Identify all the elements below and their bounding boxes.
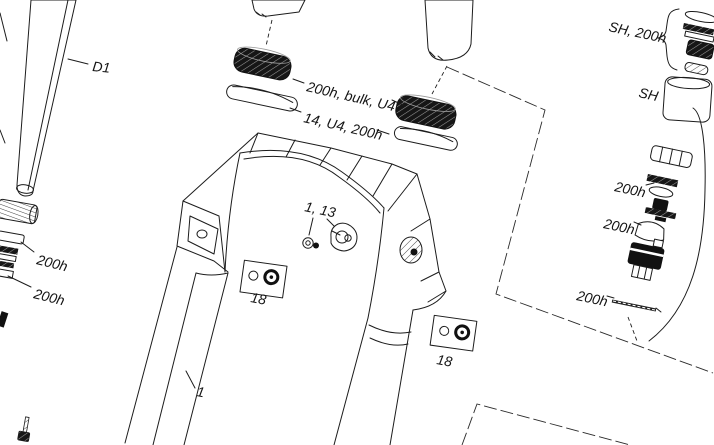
fork-lowers-crown bbox=[125, 133, 446, 445]
left-edge-tube-fragment bbox=[0, 13, 7, 143]
guide-screw bbox=[303, 238, 319, 249]
left-stanchion-tube-end bbox=[252, 0, 305, 17]
callout-seal-head: SH bbox=[637, 84, 660, 104]
piston-block bbox=[645, 198, 677, 223]
callout-right-shaft: 200h bbox=[574, 287, 609, 309]
exploded-parts-diagram: D1 200h, bulk, U4 14, U4, 200h SH, 200h … bbox=[0, 0, 714, 445]
leader-dashed-right-seal bbox=[432, 66, 447, 94]
left-seal-stack bbox=[0, 245, 18, 278]
seal-head-cup bbox=[663, 76, 713, 123]
callout-right-piston: 200h bbox=[601, 215, 636, 237]
callout-seal-head-group: SH, 200h bbox=[607, 18, 668, 46]
rebound-shaft bbox=[612, 301, 661, 312]
damper-shaft-tube bbox=[16, 0, 76, 196]
glide-ring bbox=[650, 145, 693, 168]
callout-dust-seal-kit: 200h, bulk, U4 bbox=[304, 78, 397, 114]
callout-fender-bolt-left: 18 bbox=[249, 289, 267, 307]
diagram-canvas: D1 200h, bulk, U4 14, U4, 200h SH, 200h … bbox=[0, 0, 714, 445]
left-dark-part bbox=[0, 311, 8, 327]
section-divider-lines bbox=[447, 67, 713, 445]
foam-ring-left bbox=[225, 84, 298, 113]
callout-left-lower-service: 200h bbox=[31, 285, 66, 308]
fender-bolt-plate-right bbox=[430, 315, 477, 351]
bottom-out-bumper bbox=[625, 242, 665, 282]
dust-seal-right bbox=[394, 91, 459, 131]
leader-dashed-shaft bbox=[628, 317, 637, 341]
callout-lower-leg: 1 bbox=[195, 383, 205, 400]
left-top-cap-knob bbox=[0, 199, 39, 225]
foam-ring-right bbox=[393, 125, 458, 151]
callout-leaders bbox=[8, 59, 654, 388]
bottom-left-bolt bbox=[18, 416, 33, 442]
callout-right-seal-stack: 200h bbox=[612, 178, 647, 200]
dust-seal-left bbox=[232, 44, 293, 82]
callout-left-upper-service: 200h bbox=[34, 251, 69, 274]
callout-damper-shaft: D1 bbox=[92, 58, 111, 76]
callout-bolt-cable-guide: 1, 13 bbox=[303, 198, 337, 220]
seal-head-kit-parts bbox=[683, 9, 714, 75]
callout-foam-ring-kit: 14, U4, 200h bbox=[302, 109, 384, 143]
leader-dashed-left-seal bbox=[266, 20, 272, 46]
seal-washer-stack bbox=[646, 174, 678, 199]
cable-guide-clip bbox=[331, 223, 357, 251]
callout-fender-bolt-right: 18 bbox=[435, 351, 453, 369]
right-stanchion-tube-end bbox=[425, 0, 473, 60]
